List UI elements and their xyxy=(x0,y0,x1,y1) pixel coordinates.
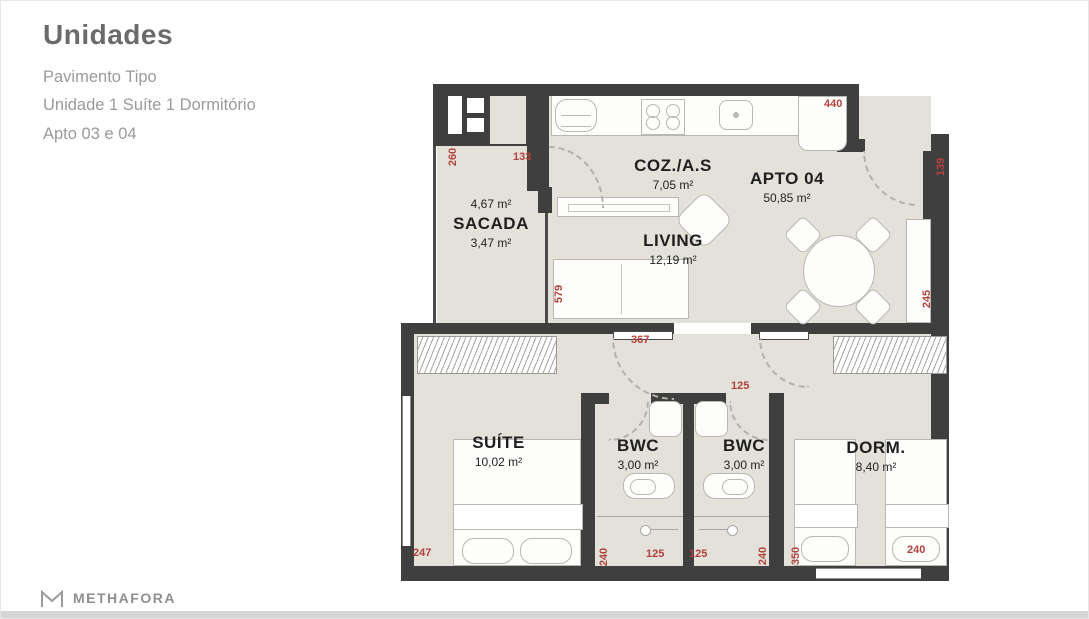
shaft-duct-square-2 xyxy=(467,118,484,132)
wall-bwc1-stub xyxy=(595,393,609,404)
pillow xyxy=(462,538,514,564)
dimension-label: 579 xyxy=(553,285,565,303)
brand-name: METHAFORA xyxy=(73,590,176,606)
dimension-label: 245 xyxy=(921,290,933,308)
pillow xyxy=(520,538,572,564)
room-name: SUÍTE xyxy=(441,433,556,453)
pillow xyxy=(801,536,849,562)
wall-suite-bwc xyxy=(581,393,595,569)
room-name: BWC xyxy=(701,436,787,456)
room-name: APTO 04 xyxy=(727,169,847,189)
suite-window xyxy=(402,396,411,546)
room-area: 8,40 m² xyxy=(816,460,936,474)
dimension-label: 240 xyxy=(907,544,925,556)
dimension-label: 260 xyxy=(447,148,459,166)
sofa-cushion-line xyxy=(621,264,622,314)
subtitle-line-2: Unidade 1 Suíte 1 Dormitório xyxy=(43,91,256,119)
subtitle-line-1: Pavimento Tipo xyxy=(43,63,256,91)
dorm-wardrobe xyxy=(833,336,947,374)
room-name: COZ./A.S xyxy=(613,156,733,176)
bwc2-vanity xyxy=(695,401,728,437)
bwc1-drain xyxy=(640,525,651,536)
dimension-label: 247 xyxy=(413,547,431,559)
bwc1-shower-line xyxy=(597,516,683,517)
methafora-m-icon xyxy=(39,587,65,609)
dimension-label: 139 xyxy=(935,158,947,176)
room-label-dorm: DORM. 8,40 m² xyxy=(816,438,936,474)
dimension-label: 125 xyxy=(731,380,749,392)
room-label-bwc2: BWC 3,00 m² xyxy=(701,436,787,472)
room-label-bwc1: BWC 3,00 m² xyxy=(595,436,681,472)
room-name: BWC xyxy=(595,436,681,456)
bwc1-toilet-icon xyxy=(623,473,675,499)
bed-sheet-band xyxy=(794,504,858,528)
dimension-label: 367 xyxy=(631,334,649,346)
room-name: LIVING xyxy=(613,231,733,251)
dimension-label: 440 xyxy=(824,98,842,110)
burner xyxy=(646,116,660,130)
bed-sheet-band xyxy=(885,504,949,528)
tank-drain xyxy=(733,112,739,118)
page-title: Unidades xyxy=(43,19,256,51)
shaft-duct-slot xyxy=(448,96,462,134)
room-name: DORM. xyxy=(816,438,936,458)
room-label-living: LIVING 12,19 m² xyxy=(613,231,733,267)
sofa xyxy=(553,259,689,319)
dimension-label: 240 xyxy=(757,547,769,565)
suite-wardrobe xyxy=(417,336,557,374)
room-area: 3,47 m² xyxy=(431,236,551,250)
room-area-upper: 4,67 m² xyxy=(431,197,551,211)
room-area: 50,85 m² xyxy=(727,191,847,205)
room-label-coz: COZ./A.S 7,05 m² xyxy=(613,156,733,192)
dorm-window xyxy=(816,568,921,579)
page-header: Unidades Pavimento Tipo Unidade 1 Suíte … xyxy=(43,19,256,148)
wall-bwc2-dorm xyxy=(769,393,784,569)
dimension-label: 240 xyxy=(598,548,610,566)
room-label-apto04: APTO 04 50,85 m² xyxy=(727,169,847,205)
bwc2-drain xyxy=(727,525,738,536)
laundry-tank-icon xyxy=(719,100,753,130)
room-area: 3,00 m² xyxy=(701,458,787,472)
shaft-duct-square-1 xyxy=(467,98,484,113)
wall-bwc-divider xyxy=(683,399,694,569)
room-area: 10,02 m² xyxy=(441,455,556,469)
page-subtitle: Pavimento Tipo Unidade 1 Suíte 1 Dormitó… xyxy=(43,63,256,148)
bwc2-toilet-icon xyxy=(703,473,755,499)
dining-table xyxy=(803,235,875,307)
sink-drainboard-lines xyxy=(561,115,591,127)
window-bottom-bar xyxy=(1,611,1089,619)
stove-icon xyxy=(641,99,685,135)
shaft-niche xyxy=(490,96,526,144)
burner xyxy=(666,116,680,130)
kitchen-sink-icon xyxy=(555,99,597,132)
bwc2-shower-line xyxy=(694,516,769,517)
room-area: 12,19 m² xyxy=(613,253,733,267)
room-label-sacada: 4,67 m² SACADA 3,47 m² xyxy=(431,197,551,250)
dimension-label: 133 xyxy=(513,151,531,163)
room-label-suite: SUÍTE 10,02 m² xyxy=(441,433,556,469)
bed-sheet-band xyxy=(453,504,583,530)
dimension-label: 350 xyxy=(790,547,802,565)
room-name: SACADA xyxy=(431,214,551,234)
toilet-bowl xyxy=(630,479,656,495)
unit-plan-page: Unidades Pavimento Tipo Unidade 1 Suíte … xyxy=(0,0,1089,619)
dimension-label: 125 xyxy=(689,548,707,560)
bwc1-vanity xyxy=(649,401,682,437)
room-area: 7,05 m² xyxy=(613,178,733,192)
subtitle-line-3: Apto 03 e 04 xyxy=(43,120,256,148)
room-area: 3,00 m² xyxy=(595,458,681,472)
toilet-bowl xyxy=(722,479,748,495)
dimension-label: 125 xyxy=(646,548,664,560)
brand-logo: METHAFORA xyxy=(39,587,176,609)
